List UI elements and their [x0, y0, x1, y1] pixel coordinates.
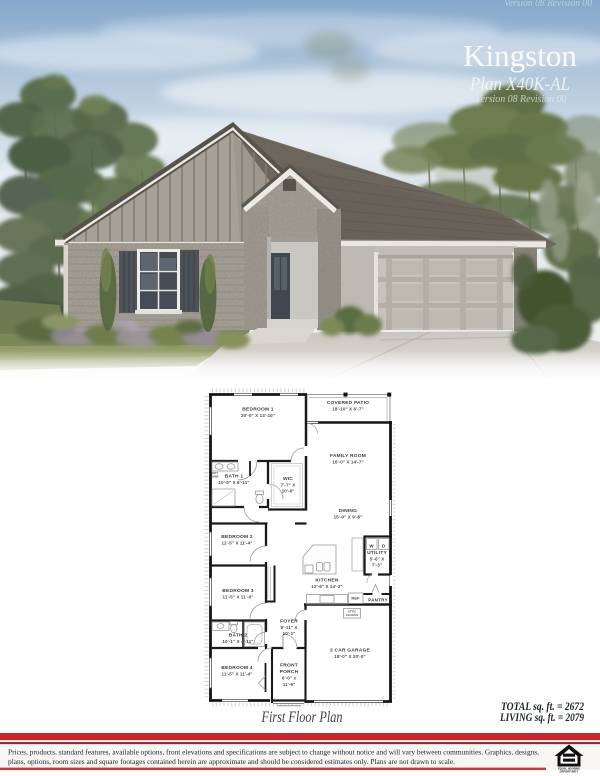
svg-text:BATH 1: BATH 1 — [225, 474, 244, 480]
svg-text:Prices, products, standard fea: Prices, products, standard features, ava… — [8, 748, 539, 757]
svg-text:UTILITY: UTILITY — [367, 550, 387, 556]
svg-text:10'-0" X 6'-11": 10'-0" X 6'-11" — [218, 480, 249, 485]
svg-text:plans, options, room sizes and: plans, options, room sizes and square fo… — [8, 757, 455, 766]
svg-text:18'-0" X 20'-0": 18'-0" X 20'-0" — [334, 654, 365, 659]
svg-text:BEDROOM 1: BEDROOM 1 — [242, 407, 273, 413]
svg-text:15'-0" X 9'-8": 15'-0" X 9'-8" — [334, 515, 363, 520]
svg-text:WIC: WIC — [283, 476, 293, 482]
svg-text:Plan X40K-AL: Plan X40K-AL — [469, 74, 570, 95]
svg-text:KITCHEN: KITCHEN — [315, 578, 338, 584]
svg-text:10'-6": 10'-6" — [282, 489, 295, 494]
svg-text:BEDROOM 4: BEDROOM 4 — [221, 665, 252, 671]
svg-text:2 CAR GARAGE: 2 CAR GARAGE — [330, 648, 370, 654]
svg-text:Version 08 Revision 00: Version 08 Revision 00 — [476, 94, 568, 105]
svg-text:5'-6" X: 5'-6" X — [370, 557, 385, 562]
svg-text:PORCH: PORCH — [280, 669, 299, 675]
svg-text:First Floor Plan: First Floor Plan — [261, 709, 343, 726]
svg-text:PANTRY: PANTRY — [368, 598, 388, 603]
svg-text:BATH 2: BATH 2 — [229, 633, 248, 639]
svg-text:7'-3": 7'-3" — [372, 563, 382, 568]
svg-text:11'-6": 11'-6" — [283, 682, 296, 687]
svg-text:FRONT: FRONT — [280, 663, 298, 669]
svg-text:LIVING sq. ft. = 2079: LIVING sq. ft. = 2079 — [499, 712, 584, 724]
svg-text:9'-11" X: 9'-11" X — [280, 625, 297, 630]
svg-text:10'-1": 10'-1" — [283, 631, 296, 636]
svg-text:FOYER: FOYER — [280, 619, 298, 625]
svg-text:7'-7" X: 7'-7" X — [281, 483, 296, 488]
svg-text:REF: REF — [351, 596, 360, 601]
svg-text:Version 08 Revision 00: Version 08 Revision 00 — [504, 0, 592, 9]
svg-text:15'-0" X 14'-7": 15'-0" X 14'-7" — [332, 460, 363, 465]
svg-text:11'-5" X 11'-4": 11'-5" X 11'-4" — [222, 541, 253, 546]
svg-text:12'-6" X 14'-2": 12'-6" X 14'-2" — [311, 584, 342, 589]
svg-text:20'-0" X 13'-10": 20'-0" X 13'-10" — [241, 413, 275, 418]
svg-text:DINING: DINING — [339, 508, 357, 514]
svg-text:OPPORTUNITY: OPPORTUNITY — [560, 769, 579, 773]
svg-text:COVERED PATIO: COVERED PATIO — [327, 400, 369, 406]
svg-text:D: D — [382, 544, 385, 549]
svg-text:BEDROOM 2: BEDROOM 2 — [221, 534, 252, 540]
svg-text:18'-10" X 6'-7": 18'-10" X 6'-7" — [332, 407, 363, 412]
svg-text:ACCESS: ACCESS — [346, 613, 358, 617]
svg-text:10'-1" X 4'-11": 10'-1" X 4'-11" — [222, 639, 253, 644]
svg-text:Kingston: Kingston — [463, 38, 577, 73]
svg-text:FAMILY ROOM: FAMILY ROOM — [330, 453, 366, 459]
svg-text:11'-5" X 11'-0": 11'-5" X 11'-0" — [223, 595, 254, 600]
svg-text:SINK: SINK — [211, 474, 219, 478]
svg-text:6'-0" x: 6'-0" x — [282, 676, 297, 681]
svg-text:BEDROOM 3: BEDROOM 3 — [222, 588, 253, 594]
svg-text:W: W — [369, 544, 374, 549]
svg-text:11'-5" X 11'-4": 11'-5" X 11'-4" — [222, 672, 253, 677]
